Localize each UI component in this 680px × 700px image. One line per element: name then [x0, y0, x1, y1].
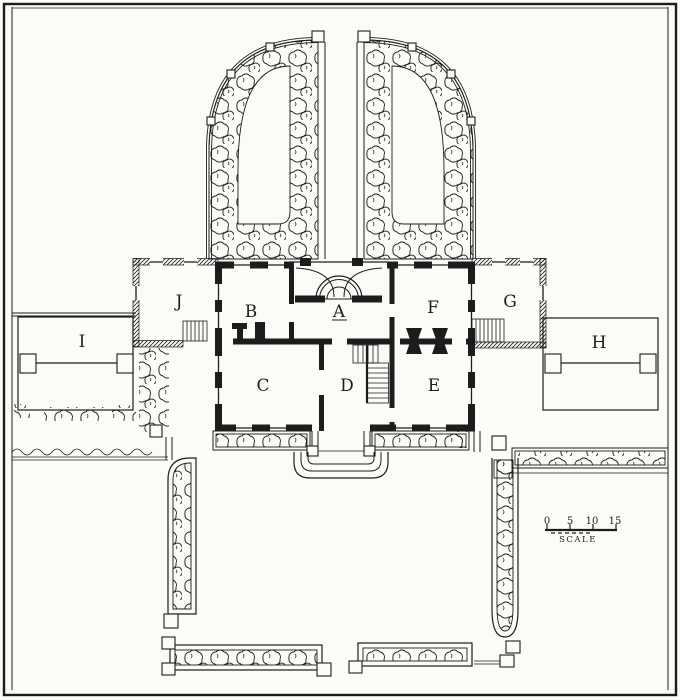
room-label-a: A [332, 302, 346, 322]
fireplace-room-b [232, 322, 265, 339]
pergola-post [467, 117, 475, 125]
entry-steps [290, 258, 387, 299]
room-label-d: D [340, 376, 354, 396]
stair-main-room-d [353, 345, 389, 403]
scale-bar: 0 5 10 15 SCALE [544, 516, 622, 545]
garden-arc-left [207, 40, 318, 259]
bow-steps [294, 452, 388, 478]
room-label-c: C [256, 376, 269, 396]
room-label-f: F [427, 298, 439, 318]
pergola-wing-h [543, 318, 658, 410]
stair-annex-j [183, 321, 207, 341]
sheet-frame [4, 4, 676, 695]
room-label-e: E [428, 376, 440, 396]
scale-tick-10: 10 [586, 516, 599, 527]
scale-bar-label: SCALE [559, 535, 597, 545]
pergola-post [545, 354, 561, 373]
room-label-g: G [503, 292, 517, 312]
pergola-post [227, 70, 235, 78]
room-label-b: B [245, 302, 258, 322]
pergola-post [207, 117, 215, 125]
bottom-bed-left [162, 637, 331, 676]
garden-arc-right [364, 40, 475, 259]
pergola-post [117, 354, 133, 373]
pergola-post [447, 70, 455, 78]
room-label-h: H [592, 333, 607, 353]
forecourt-border-right [474, 458, 520, 667]
room-label-i: I [79, 332, 86, 352]
pergola-post [408, 43, 416, 51]
pergola-wing-i [12, 313, 136, 421]
east-planting-band [512, 448, 668, 473]
room-label-j: J [174, 292, 183, 312]
pergola-post [266, 43, 274, 51]
stair-annex-g [472, 319, 504, 342]
plan-sheet: A B C D E F G H I J 0 5 10 15 SCALE [0, 0, 680, 700]
site-plan-drawing: A B C D E F G H I J 0 5 10 15 SCALE [0, 0, 680, 700]
pergola-post [20, 354, 36, 373]
house-interior-walls [218, 262, 471, 431]
walk-gate-post [312, 31, 324, 42]
scale-tick-15: 15 [609, 516, 622, 527]
forecourt-border-left [164, 458, 196, 628]
central-garden-walk [312, 31, 370, 259]
walk-gate-post [358, 31, 370, 42]
pergola-post [640, 354, 656, 373]
bottom-bed-right [349, 643, 472, 673]
